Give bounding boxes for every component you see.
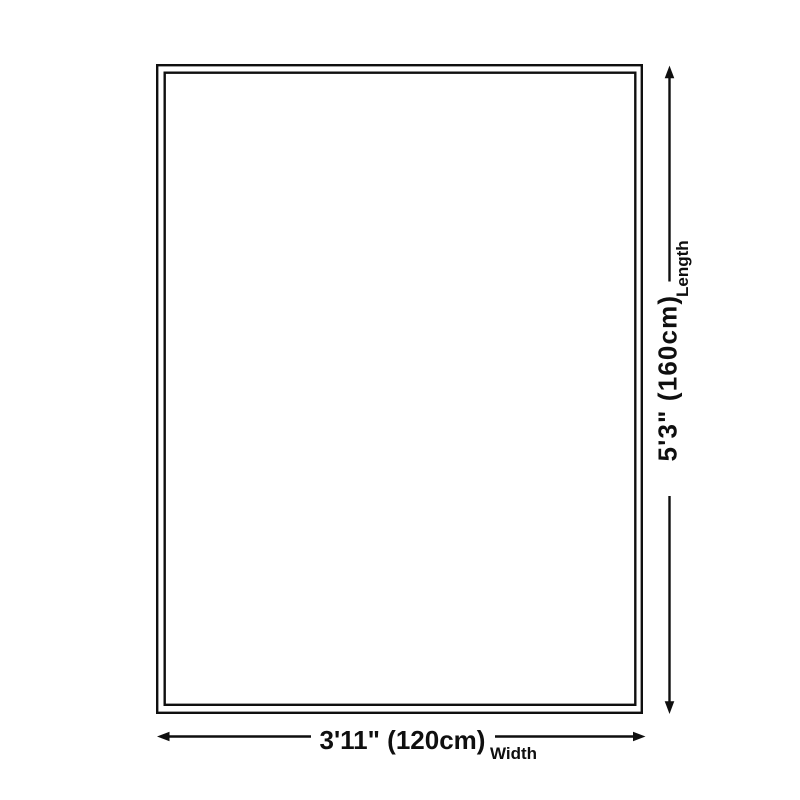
svg-text:Length: Length (673, 240, 692, 297)
svg-text:3'11" (120cm): 3'11" (120cm) (320, 725, 486, 755)
svg-text:5'3" (160cm): 5'3" (160cm) (653, 295, 683, 462)
svg-text:Width: Width (490, 744, 537, 763)
